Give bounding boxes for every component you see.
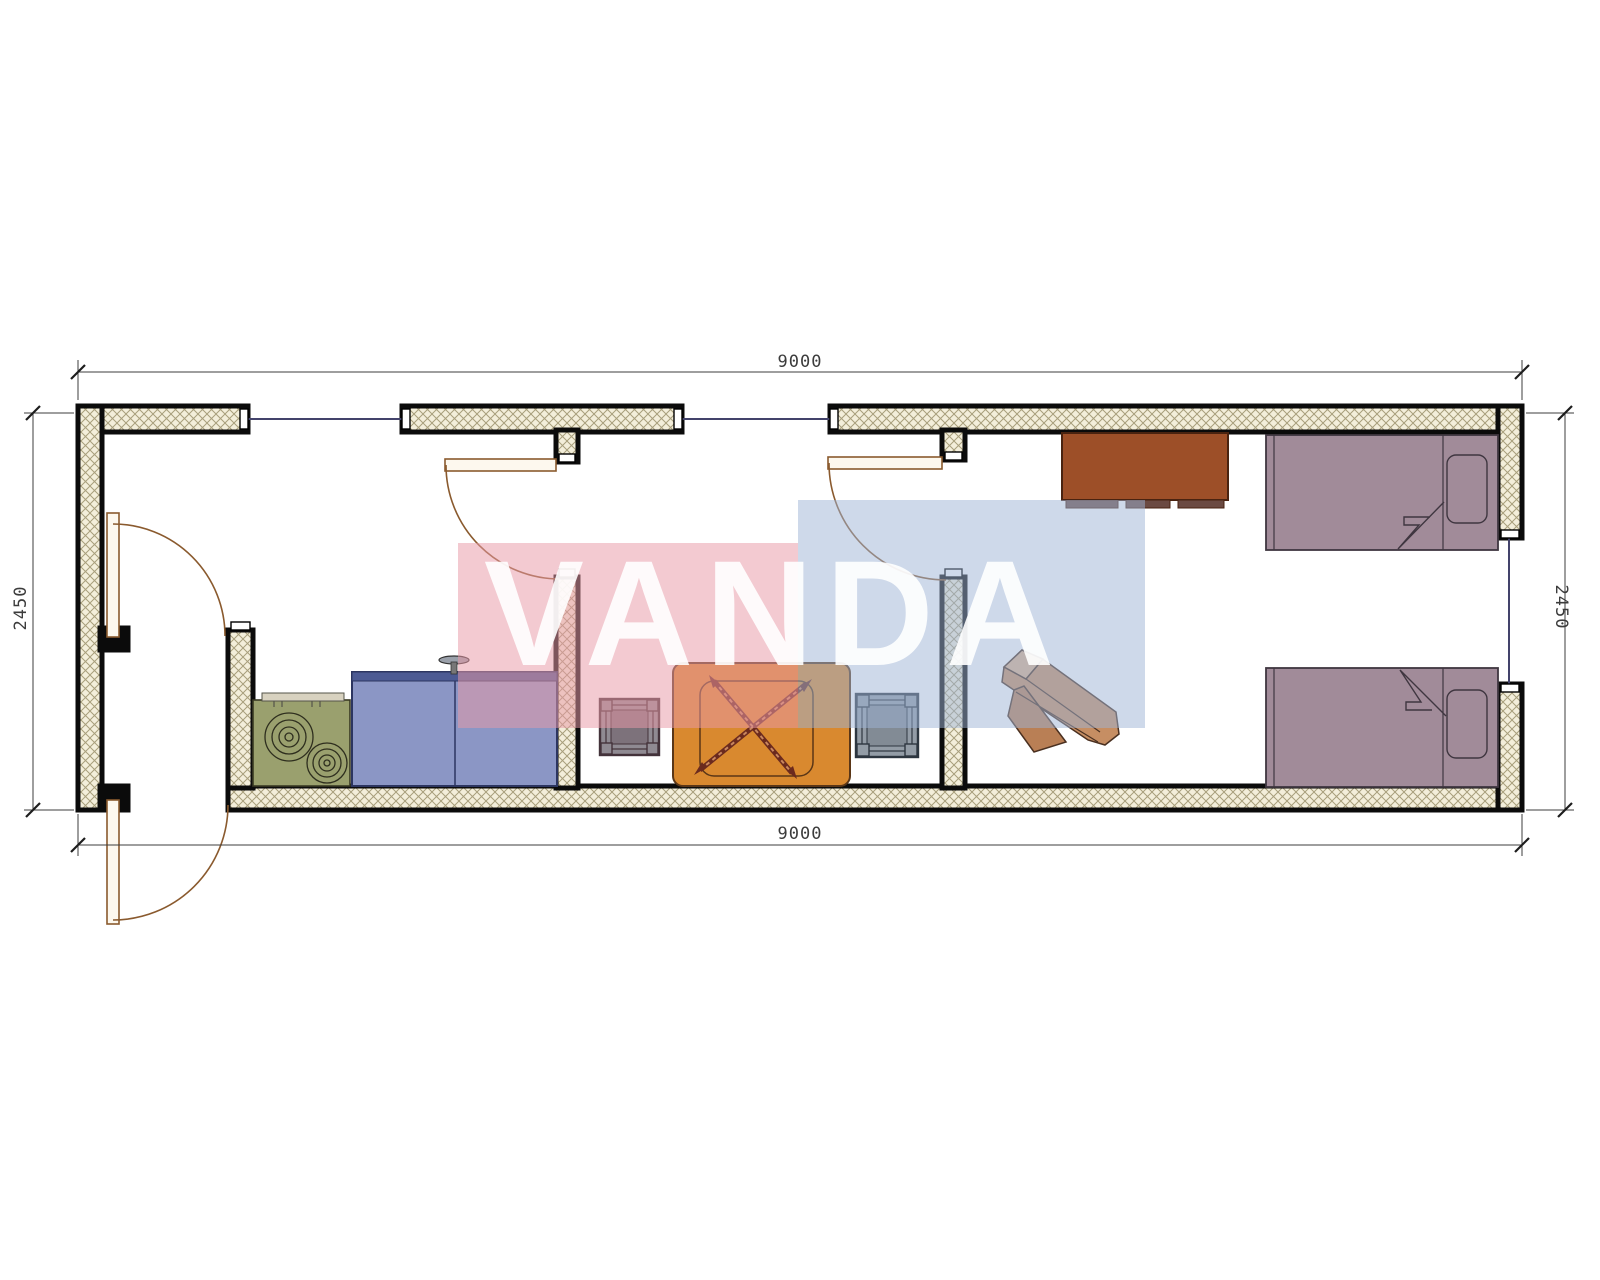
door-jamb-cap [945,452,962,460]
window-jamb-cap [674,409,682,429]
vestibule-door-swing [113,524,225,636]
door-jamb-cap [559,454,575,462]
wall-top-middle [402,406,682,432]
window-jamb-cap [240,409,248,429]
window-jamb-cap [402,409,410,429]
floor-plan-drawing: 9000 9000 2450 2450 [0,0,1600,1280]
door-jamb-cap [231,622,250,630]
dimension-right-value: 2450 [1551,585,1571,630]
dimension-left: 2450 [11,406,74,817]
window-jamb-cap [830,409,838,429]
watermark: VANDA [458,500,1145,728]
room-door-1-leaf [445,459,556,471]
wall-top-right [830,406,1522,432]
floor-plan-canvas: 9000 9000 2450 2450 [0,0,1600,1280]
dimension-bottom-value: 9000 [778,824,823,844]
dimension-top-value: 9000 [778,352,823,372]
stove [253,693,350,786]
bed-top [1266,435,1498,550]
dimension-bottom: 9000 [71,814,1529,856]
wall-right-top [1498,406,1522,538]
window-jamb-cap [1501,530,1519,538]
entry-door-swing [113,805,228,920]
stove-shelf [262,693,344,701]
wall-bottom [228,786,1522,810]
wall-right-bottom [1498,684,1522,810]
bed-bottom [1266,668,1498,787]
dimension-left-value: 2450 [11,586,31,631]
dresser [1062,433,1228,508]
window-jamb-cap [1501,684,1519,692]
pillow [1447,455,1487,523]
entry-door-leaf [107,800,119,924]
vestibule-door-leaf [107,513,119,637]
dimension-right: 2450 [1526,406,1574,817]
dimension-top: 9000 [71,352,1529,400]
watermark-text: VANDA [484,529,1066,697]
pillow [1447,690,1487,758]
wall-vestibule [228,630,253,788]
wall-left [78,406,102,810]
room-door-2-leaf [828,457,942,469]
